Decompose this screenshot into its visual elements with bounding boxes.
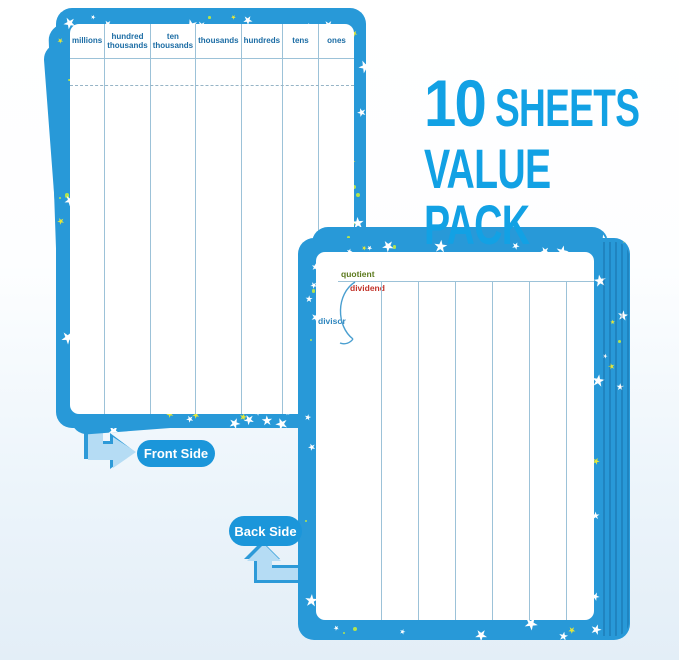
place-value-column: ten thousands	[151, 24, 196, 414]
column-header-label: thousands	[196, 24, 240, 58]
star-icon	[353, 627, 357, 631]
star-icon: ★	[398, 628, 406, 637]
front-side-label-pill: Front Side	[137, 440, 215, 467]
star-icon	[305, 520, 307, 522]
back-board: ★★★★★★★★★★★★★★★★★★★★★★★★★★★★★★★★★★★ quot…	[298, 238, 630, 640]
star-icon	[208, 16, 211, 19]
star-icon: ★	[273, 415, 292, 428]
sheets-word: SHEETS	[495, 82, 639, 135]
star-icon: ★	[228, 14, 236, 22]
star-icon: ★	[567, 625, 579, 637]
column-header-label: tens	[290, 24, 310, 58]
back-board-sheet-stack: ★★★★★ ★★★★★★★★★★★★★★★★★★★★★★★★★★★★★★★★★★…	[298, 238, 630, 640]
column-header-label: ones	[325, 24, 348, 58]
column-header-label: hundreds	[242, 24, 282, 58]
star-icon: ★	[261, 414, 274, 428]
star-icon	[393, 245, 397, 249]
division-bracket	[330, 280, 360, 346]
star-icon: ★	[184, 414, 195, 426]
place-value-column: hundred thousands	[105, 24, 150, 414]
star-icon	[312, 289, 316, 293]
header-underline	[70, 58, 354, 59]
sheet-stack-edges	[599, 242, 629, 636]
star-icon: ★	[333, 625, 341, 634]
star-icon: ★	[355, 56, 366, 77]
back-side-label-pill: Back Side	[229, 516, 302, 546]
product-image: ★★★★★★★★★★★★ ★★★★★★★★★★ ★★★★★★★★★★★★★★★★…	[0, 0, 679, 660]
place-value-column: millions	[70, 24, 105, 414]
sheet-count-headline: 10 SHEETS VALUE PACK	[424, 56, 679, 253]
star-icon	[65, 193, 69, 197]
star-icon	[59, 197, 61, 199]
star-icon: ★	[557, 631, 569, 640]
star-icon: ★	[56, 216, 66, 227]
star-icon: ★	[355, 107, 366, 121]
column-line	[418, 281, 419, 620]
star-icon: ★	[226, 415, 243, 428]
place-value-column: hundreds	[242, 24, 283, 414]
dashed-row-line	[70, 85, 354, 86]
column-header-label: hundred thousands	[105, 24, 149, 58]
star-icon: ★	[471, 626, 491, 640]
star-icon: ★	[56, 35, 65, 45]
star-icon	[343, 632, 345, 634]
column-line	[381, 281, 382, 620]
column-header-label: ten thousands	[151, 24, 195, 58]
division-chart: quotient dividend divisor	[316, 252, 594, 620]
column-line	[455, 281, 456, 620]
star-icon: ★	[305, 295, 314, 304]
quotient-label: quotient	[341, 269, 375, 279]
star-icon: ★	[304, 413, 313, 422]
column-header-label: millions	[70, 24, 104, 58]
star-icon	[310, 339, 312, 341]
column-line	[566, 281, 567, 620]
sheet-count-number: 10	[424, 70, 485, 136]
place-value-column: thousands	[196, 24, 241, 414]
value-pack-text: VALUE PACK	[424, 141, 603, 253]
star-icon: ★	[89, 14, 96, 22]
column-line	[492, 281, 493, 620]
division-bar	[338, 281, 594, 282]
star-icon	[356, 193, 360, 197]
column-line	[529, 281, 530, 620]
star-icon: ★	[58, 8, 65, 16]
